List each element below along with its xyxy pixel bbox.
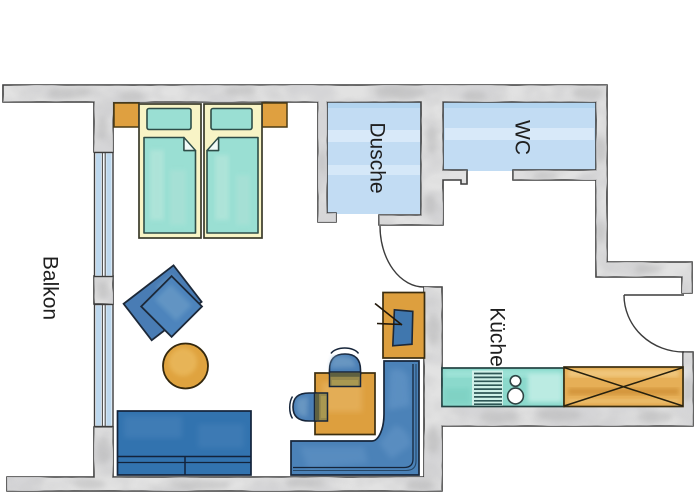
svg-text:Balkon: Balkon <box>39 256 62 320</box>
svg-text:Dusche: Dusche <box>366 122 389 193</box>
svg-text:WC: WC <box>511 120 534 155</box>
svg-text:Küche: Küche <box>486 307 509 367</box>
